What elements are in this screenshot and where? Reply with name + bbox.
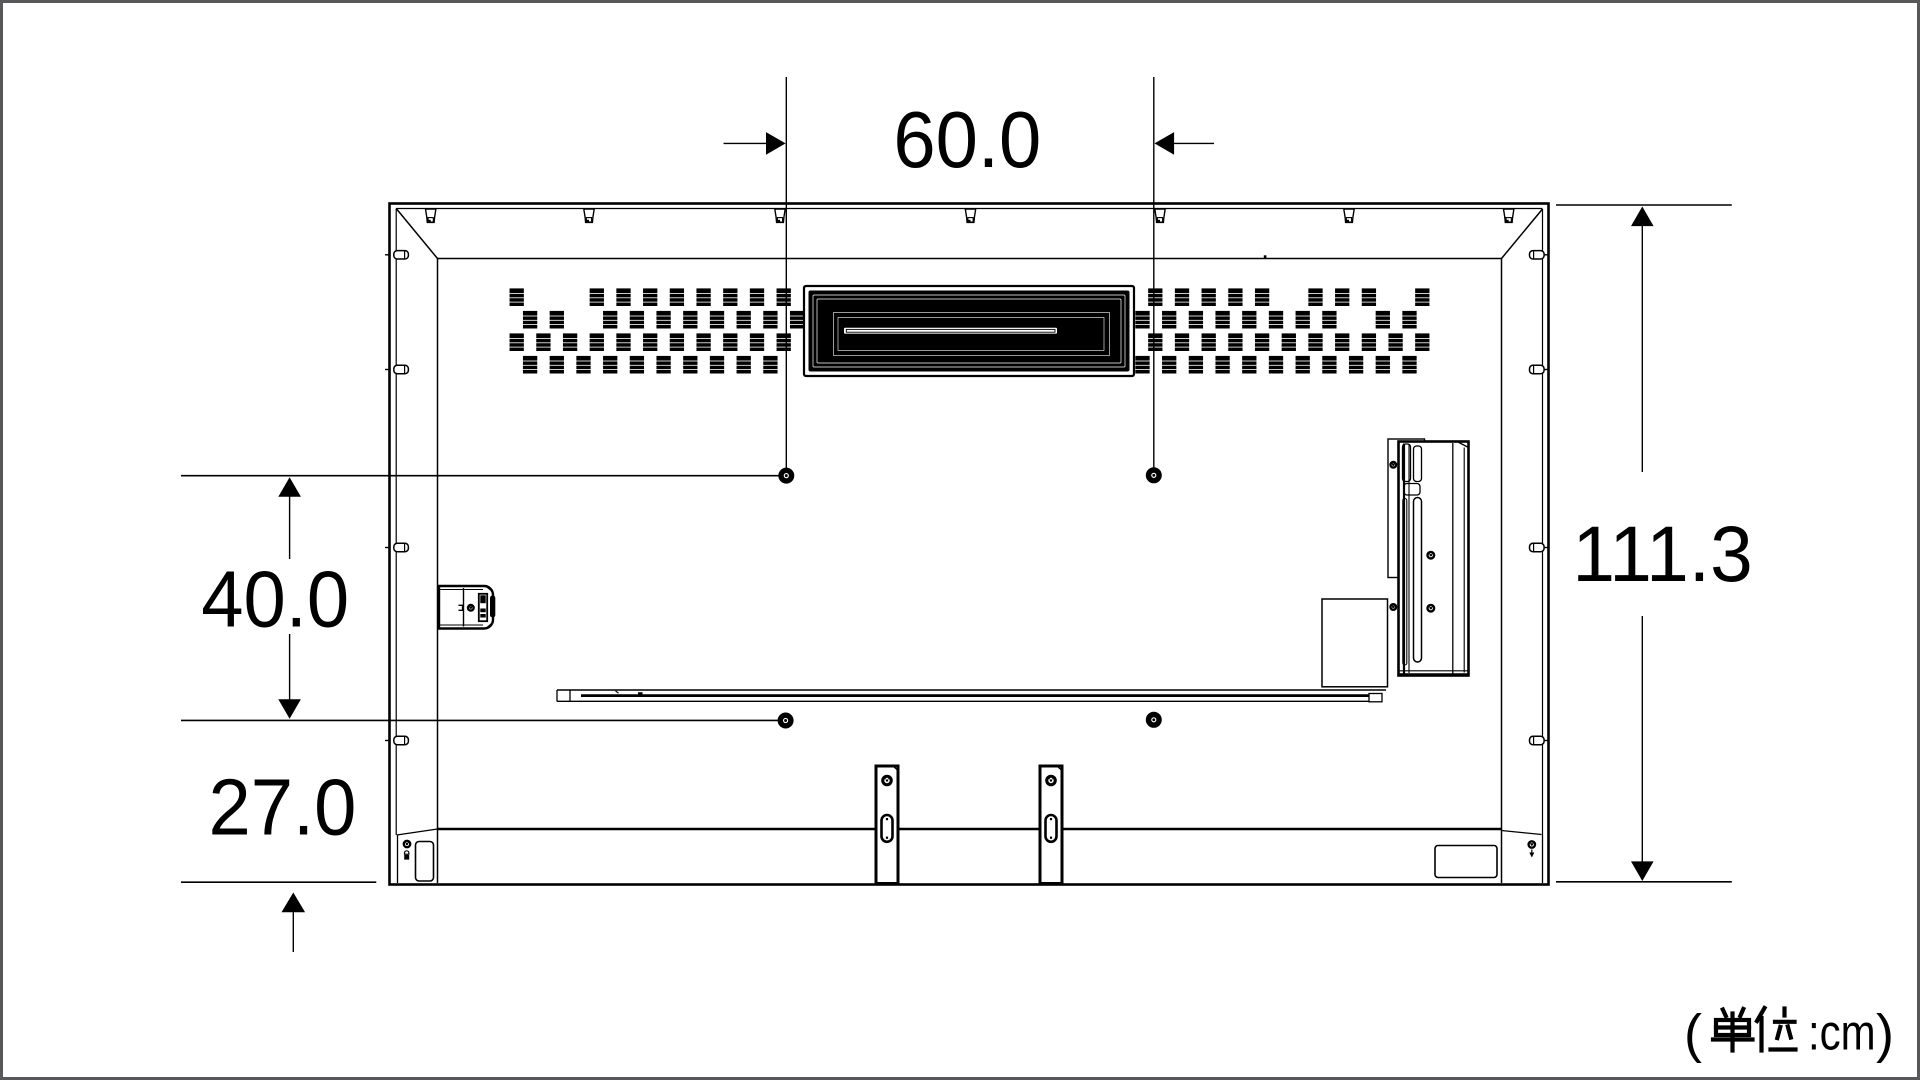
svg-text:(: (	[1684, 1004, 1702, 1064]
svg-text::cm: :cm	[1808, 1004, 1876, 1060]
svg-text:): )	[1876, 1004, 1894, 1064]
svg-text:60.0: 60.0	[893, 94, 1041, 184]
svg-text:27.0: 27.0	[208, 762, 356, 852]
svg-text:111.3: 111.3	[1572, 511, 1752, 598]
svg-text:40.0: 40.0	[201, 554, 349, 644]
